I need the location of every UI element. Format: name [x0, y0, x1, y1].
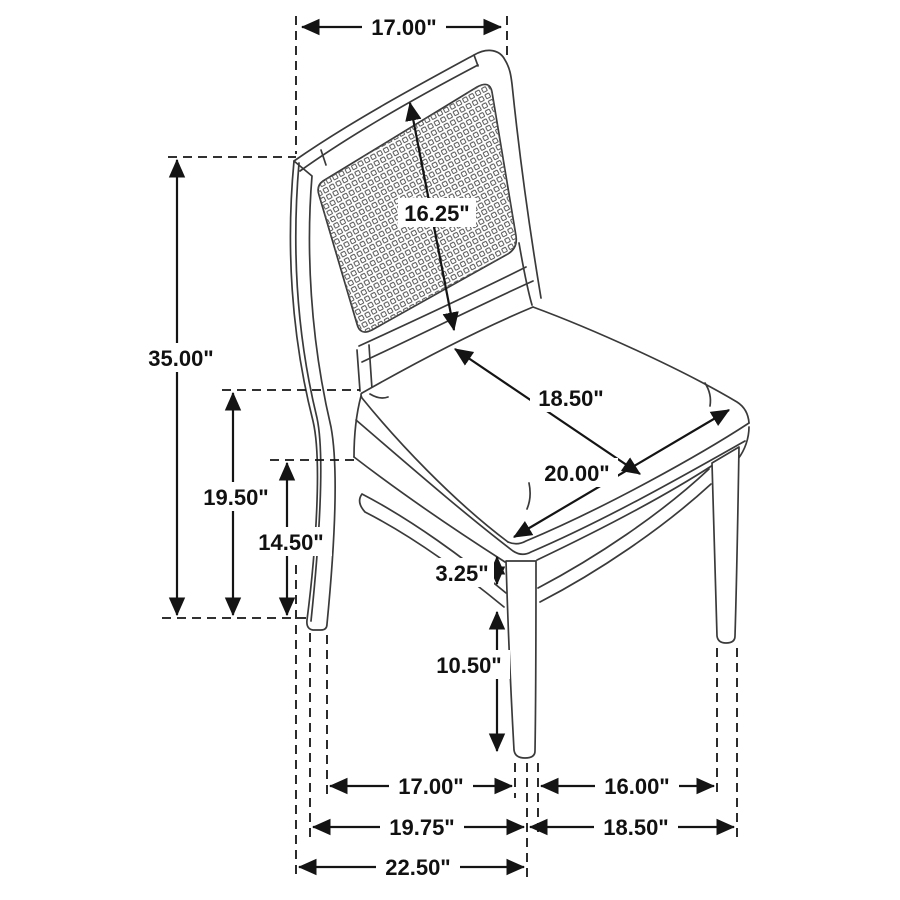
chair-drawing [290, 50, 749, 758]
dim-label-front-outer-span: 18.50" [603, 815, 668, 840]
dim-label-back-top-width: 17.00" [371, 15, 436, 40]
dim-label-overall-height: 35.00" [148, 346, 213, 371]
dim-label-feet-span-front-inner: 16.00" [604, 774, 669, 799]
dim-label-feet-span-side-inner: 17.00" [398, 774, 463, 799]
dim-label-apron-height: 14.50" [258, 530, 323, 555]
dim-label-seat-width: 20.00" [544, 461, 609, 486]
chair-dimension-diagram: 17.00" 16.25" 35.00" 19.50" 14.50" 18.50… [0, 0, 900, 900]
dim-label-stretcher-floor: 10.50" [436, 653, 501, 678]
dim-label-seat-height: 19.50" [203, 485, 268, 510]
dim-label-seat-depth: 18.50" [538, 386, 603, 411]
front-left-leg [506, 561, 536, 758]
diagram-canvas: 17.00" 16.25" 35.00" 19.50" 14.50" 18.50… [0, 0, 900, 900]
dim-label-apron-stretcher-gap: 3.25" [435, 561, 488, 586]
cushion-left-corner-side [354, 396, 361, 457]
front-right-leg [712, 447, 739, 643]
dim-label-overall-depth: 22.50" [385, 855, 450, 880]
dim-label-back-panel-diagonal: 16.25" [404, 201, 469, 226]
dim-label-depth-mid-span: 19.75" [389, 815, 454, 840]
